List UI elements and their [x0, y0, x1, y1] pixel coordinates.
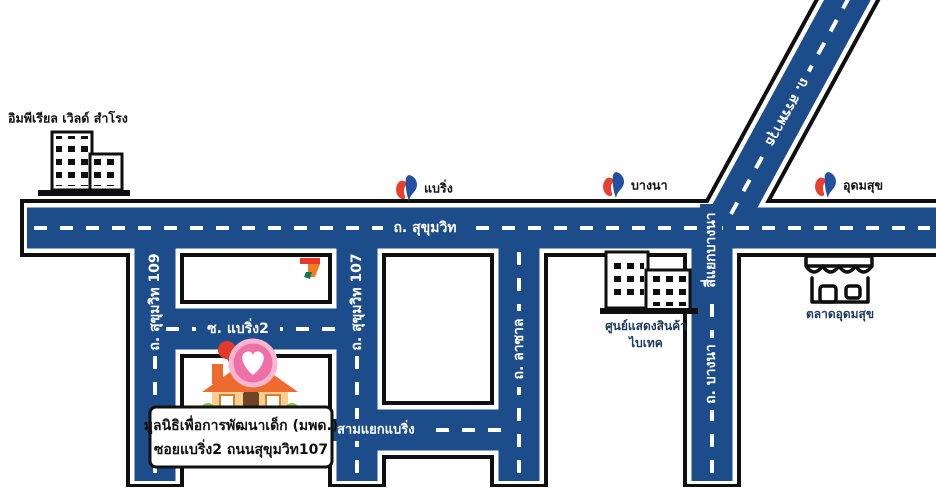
market-icon: [806, 256, 872, 302]
label-soi-bearing2: ซ. แบริ่ง2: [196, 318, 280, 340]
station-label-bangna: บางนา: [631, 178, 668, 193]
road-label-bangna: ถ. บางนา: [703, 344, 719, 404]
imperial-world-landmark: อิมพีเรียล เวิลด์ สำโรง: [8, 111, 130, 197]
market-label: ตลาดอุดมสุข: [806, 307, 874, 322]
imperial-world-label: อิมพีเรียล เวิลด์ สำโรง: [8, 111, 128, 126]
bts-icon-bearing: [396, 175, 417, 201]
road-map: ถ. สุขุมวิท ถ. สุขุมวิท 109 ถ. สุขุมวิท …: [0, 0, 936, 490]
bitec-label-line2: ไบเทค: [627, 335, 663, 350]
map-canvas: ถ. สุขุมวิท ถ. สุขุมวิท 109 ถ. สุขุมวิท …: [0, 0, 936, 490]
road-label-soi-bearing2: ซ. แบริ่ง2: [207, 318, 269, 337]
label-bangna-intersection: สี่แยกบางนา: [700, 204, 722, 296]
bitec-label-line1: ศูนย์แสดงสินค้า: [605, 319, 687, 334]
bts-icon-bangna: [603, 172, 624, 198]
label-sukhumvit107: ถ. สุขุมวิท 107: [346, 248, 368, 356]
label-sukhumvit109: ถ. สุขุมวิท 109: [144, 248, 166, 356]
callout-line2: ซอยแบริ่ง2 ถนนสุขุมวิท107: [154, 439, 328, 458]
road-label-lasalle: ถ. ลาซาล: [511, 318, 527, 379]
label-lasalle: ถ. ลาซาล: [508, 311, 530, 387]
market-landmark: ตลาดอุดมสุข: [806, 256, 874, 322]
bts-icon-udomsuk: [815, 172, 836, 198]
seven-eleven-icon: [300, 258, 320, 279]
bts-stations: แบริ่ง บางนา อุดมสุข: [396, 172, 883, 201]
callout-box: มูลนิธิเพื่อการพัฒนาเด็ก (มพด.) ซอยแบริ่…: [144, 407, 338, 467]
callout-line1: มูลนิธิเพื่อการพัฒนาเด็ก (มพด.): [144, 415, 338, 434]
building-icon-imperial: [38, 132, 130, 196]
station-label-bearing: แบริ่ง: [424, 180, 453, 196]
road-label-sukhumvit107: ถ. สุขุมวิท 107: [349, 253, 365, 350]
label-bangna: ถ. บางนา: [700, 338, 722, 410]
road-label-sukhumvit109: ถ. สุขุมวิท 109: [147, 253, 163, 350]
label-bearing-junction: สามแยกแบริ่ง: [333, 419, 431, 441]
label-sukhumvit: ถ. สุขุมวิท: [383, 217, 467, 239]
road-label-sukhumvit: ถ. สุขุมวิท: [393, 220, 456, 236]
station-label-udomsuk: อุดมสุข: [843, 178, 883, 194]
road-label-bangna-intersection: สี่แยกบางนา: [700, 212, 719, 288]
road-label-bearing-junction: สามแยกแบริ่ง: [337, 420, 415, 438]
